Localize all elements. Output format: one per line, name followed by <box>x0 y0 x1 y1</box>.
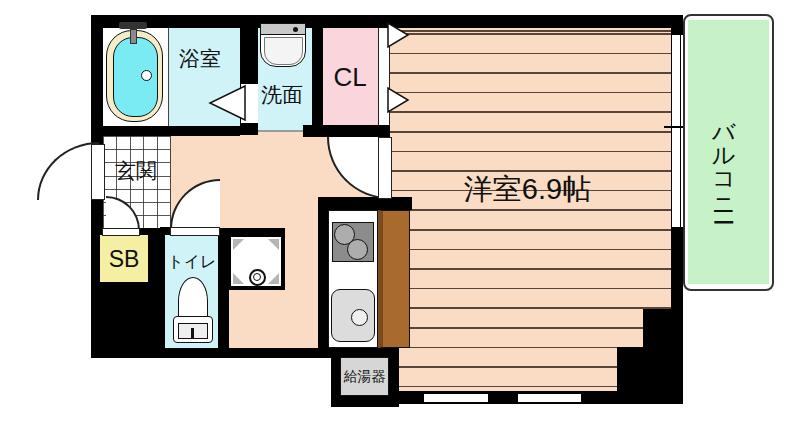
washroom-threshold <box>258 130 304 132</box>
wall-kitchen-top <box>318 197 412 210</box>
entrance-label: 玄関 <box>107 159 165 182</box>
washroom-label: 洗面 <box>252 83 312 106</box>
balcony-label: バルコニー <box>711 86 736 231</box>
toilet-label: トイレ <box>166 253 218 271</box>
toilet-tank-lever <box>191 328 194 338</box>
wall-bottom-left <box>91 348 340 358</box>
washbasin-faucet-icon <box>293 27 298 32</box>
water-heater-label: 給湯器 <box>344 369 386 384</box>
kitchen-sink-drain <box>351 309 368 326</box>
balcony-window-tick <box>664 126 683 128</box>
wall-top <box>91 15 683 28</box>
wall-toilet-door-side <box>160 227 170 235</box>
washbasin-bowl <box>264 37 303 65</box>
wall-washroom-right <box>312 15 323 135</box>
wall-right <box>671 227 683 404</box>
toilet-icon <box>178 277 208 321</box>
bathtub-faucet-stem <box>130 29 137 44</box>
wall-kitchen-left <box>318 210 328 348</box>
balcony-window <box>671 35 681 227</box>
closet-door-track <box>378 18 390 125</box>
bathtub-faucet-icon <box>119 22 147 29</box>
window <box>517 393 582 403</box>
bathroom-floor <box>169 28 247 126</box>
toilet-door-leaf <box>170 227 220 236</box>
wall-bathroom-bottom <box>91 126 240 136</box>
floor-plan: 給湯器 浴室 洗面 <box>0 0 806 422</box>
closet-label: CL <box>325 63 375 92</box>
wall-step-1 <box>643 309 671 404</box>
entrance-door-leaf <box>91 144 105 200</box>
bathroom-label: 浴室 <box>170 47 230 70</box>
window <box>423 393 489 403</box>
shoe-box-label: SB <box>101 247 147 272</box>
stove-burner <box>347 239 368 260</box>
shoebox-door-leaf <box>102 228 140 236</box>
entrance-door-arc <box>37 142 99 200</box>
drain-icon-inner <box>253 273 261 281</box>
wall-step-2 <box>617 347 643 404</box>
washbasin-counter <box>260 23 306 35</box>
main-room-label: 洋室6.9帖 <box>440 174 615 206</box>
kitchen-counter-edge <box>378 210 410 348</box>
wall-closet-bottom <box>303 125 390 137</box>
bathtub-handle <box>141 70 152 81</box>
water-heater-box: 給湯器 <box>340 357 389 396</box>
main-room-door-leaf <box>378 137 392 199</box>
